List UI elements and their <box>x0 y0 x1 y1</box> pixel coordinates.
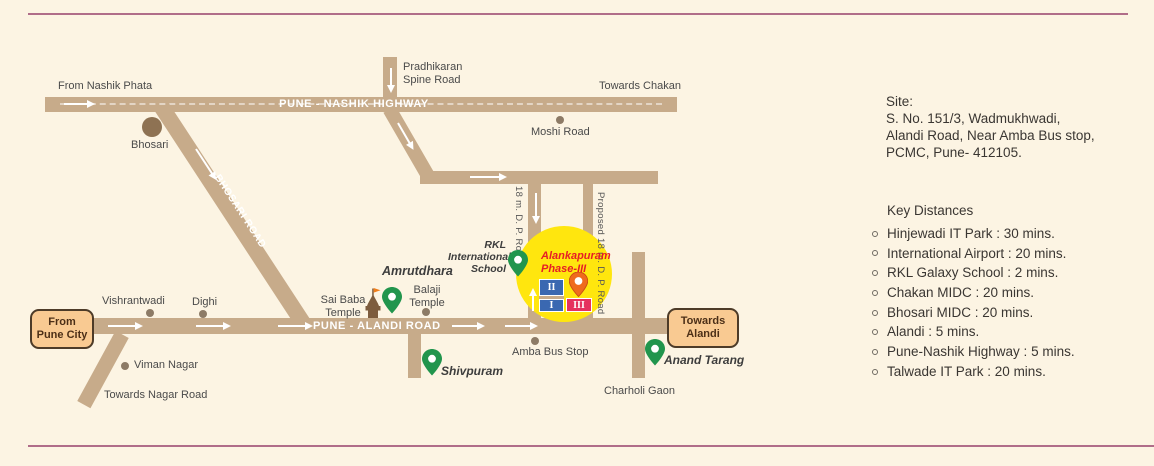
arrow-down-icon <box>535 193 537 217</box>
label-anand-tarang: Anand Tarang <box>664 353 744 367</box>
key-distance-item: Talwade IT Park : 20 mins. <box>872 365 1142 379</box>
bullet-icon <box>872 369 878 375</box>
bullet-icon <box>872 310 878 316</box>
key-distance-text: International Airport : 20 mins. <box>887 247 1066 261</box>
label-towards-nagar-road: Towards Nagar Road <box>104 389 207 402</box>
bullet-icon <box>872 329 878 335</box>
bullet-icon <box>872 270 878 276</box>
phase-1-building: I <box>539 299 564 312</box>
amrutdhara-pin-icon <box>382 287 402 319</box>
label-18m-dp-road: 18 m. D. P. Road <box>513 186 524 258</box>
site-address-line: PCMC, Pune- 412105. <box>886 144 1136 161</box>
rkl-school-pin-icon <box>508 250 528 282</box>
bullet-icon <box>872 290 878 296</box>
label-charholi-gaon: Charholi Gaon <box>604 385 675 398</box>
key-distance-item: Hinjewadi IT Park : 30 mins. <box>872 227 1142 241</box>
vishrantwadi-dot <box>146 309 154 317</box>
label-pradhikaran-spine-road: Pradhikaran Spine Road <box>403 61 462 87</box>
label-balaji-temple: Balaji Temple <box>406 284 448 310</box>
bullet-icon <box>872 250 878 256</box>
key-distance-item: International Airport : 20 mins. <box>872 247 1142 261</box>
key-distance-text: Hinjewadi IT Park : 30 mins. <box>887 227 1055 241</box>
arrow-down-icon <box>390 68 392 86</box>
arrow-right-icon <box>278 325 306 327</box>
dighi-dot <box>199 310 207 318</box>
shivpuram-pin-icon <box>422 349 442 381</box>
viman-nagar-dot <box>121 362 129 370</box>
label-towards-chakan: Towards Chakan <box>599 80 681 93</box>
key-distance-text: Talwade IT Park : 20 mins. <box>887 365 1046 379</box>
key-distance-item: RKL Galaxy School : 2 mins. <box>872 266 1142 280</box>
anand-tarang-pin-icon <box>645 339 665 371</box>
site-address-line: S. No. 151/3, Wadmukhwadi, <box>886 110 1136 127</box>
key-distance-text: RKL Galaxy School : 2 mins. <box>887 266 1058 280</box>
label-moshi-road: Moshi Road <box>531 126 590 139</box>
site-address-line: Alandi Road, Near Amba Bus stop, <box>886 127 1136 144</box>
towards-alandi-box: Towards Alandi <box>667 308 739 348</box>
arrow-right-icon <box>452 325 478 327</box>
key-distance-text: Alandi : 5 mins. <box>887 325 979 339</box>
site-info-block: Site: S. No. 151/3, Wadmukhwadi, Alandi … <box>886 93 1136 161</box>
key-distance-item: Pune-Nashik Highway : 5 mins. <box>872 345 1142 359</box>
key-distance-item: Bhosari MIDC : 20 mins. <box>872 306 1142 320</box>
arrow-right-icon <box>470 176 500 178</box>
label-pune-nashik-highway: PUNE - NASHIK HIGHWAY <box>263 98 445 110</box>
key-distance-item: Alandi : 5 mins. <box>872 325 1142 339</box>
key-distance-text: Pune-Nashik Highway : 5 mins. <box>887 345 1075 359</box>
arrow-right-icon <box>108 325 136 327</box>
label-bhosari-road: BHOSARI ROAD <box>205 162 274 260</box>
label-rkl-international-school: RKL International School <box>448 239 506 275</box>
location-map: PUNE - NASHIK HIGHWAY BHOSARI ROAD PUNE … <box>0 0 860 466</box>
key-distances-block: Key Distances Hinjewadi IT Park : 30 min… <box>872 203 1142 385</box>
bullet-icon <box>872 349 878 355</box>
arrow-right-icon <box>196 325 224 327</box>
arrow-up-icon <box>532 295 534 311</box>
label-sai-baba-temple: Sai Baba Temple <box>320 294 366 320</box>
key-distance-item: Chakan MIDC : 20 mins. <box>872 286 1142 300</box>
temple-icon <box>362 286 384 323</box>
label-bhosari: Bhosari <box>131 139 168 152</box>
label-amba-bus-stop: Amba Bus Stop <box>512 346 588 359</box>
road-bhosari <box>155 103 311 329</box>
site-info-title: Site: <box>886 93 1136 110</box>
arrow-right-icon <box>505 325 531 327</box>
from-pune-city-box: From Pune City <box>30 309 94 349</box>
key-distance-text: Chakan MIDC : 20 mins. <box>887 286 1034 300</box>
label-dighi: Dighi <box>192 296 217 309</box>
site-pin-icon <box>569 272 588 302</box>
label-vishrantwadi: Vishrantwadi <box>102 295 165 308</box>
phase-2-building: II <box>539 279 564 296</box>
key-distance-text: Bhosari MIDC : 20 mins. <box>887 306 1033 320</box>
moshi-road-dot <box>556 116 564 124</box>
label-shivpuram: Shivpuram <box>441 364 503 378</box>
road-charholi <box>632 252 645 378</box>
key-distances-title: Key Distances <box>887 203 1142 218</box>
bhosari-dot <box>142 117 162 137</box>
key-distances-list: Hinjewadi IT Park : 30 mins. Internation… <box>872 227 1142 378</box>
road-shivpuram <box>408 333 421 378</box>
label-amrutdhara: Amrutdhara <box>382 264 453 278</box>
label-viman-nagar: Viman Nagar <box>134 359 198 372</box>
arrow-right-icon <box>64 103 88 105</box>
bullet-icon <box>872 231 878 237</box>
amba-bus-stop-dot <box>531 337 539 345</box>
label-from-nashik-phata: From Nashik Phata <box>58 80 152 93</box>
